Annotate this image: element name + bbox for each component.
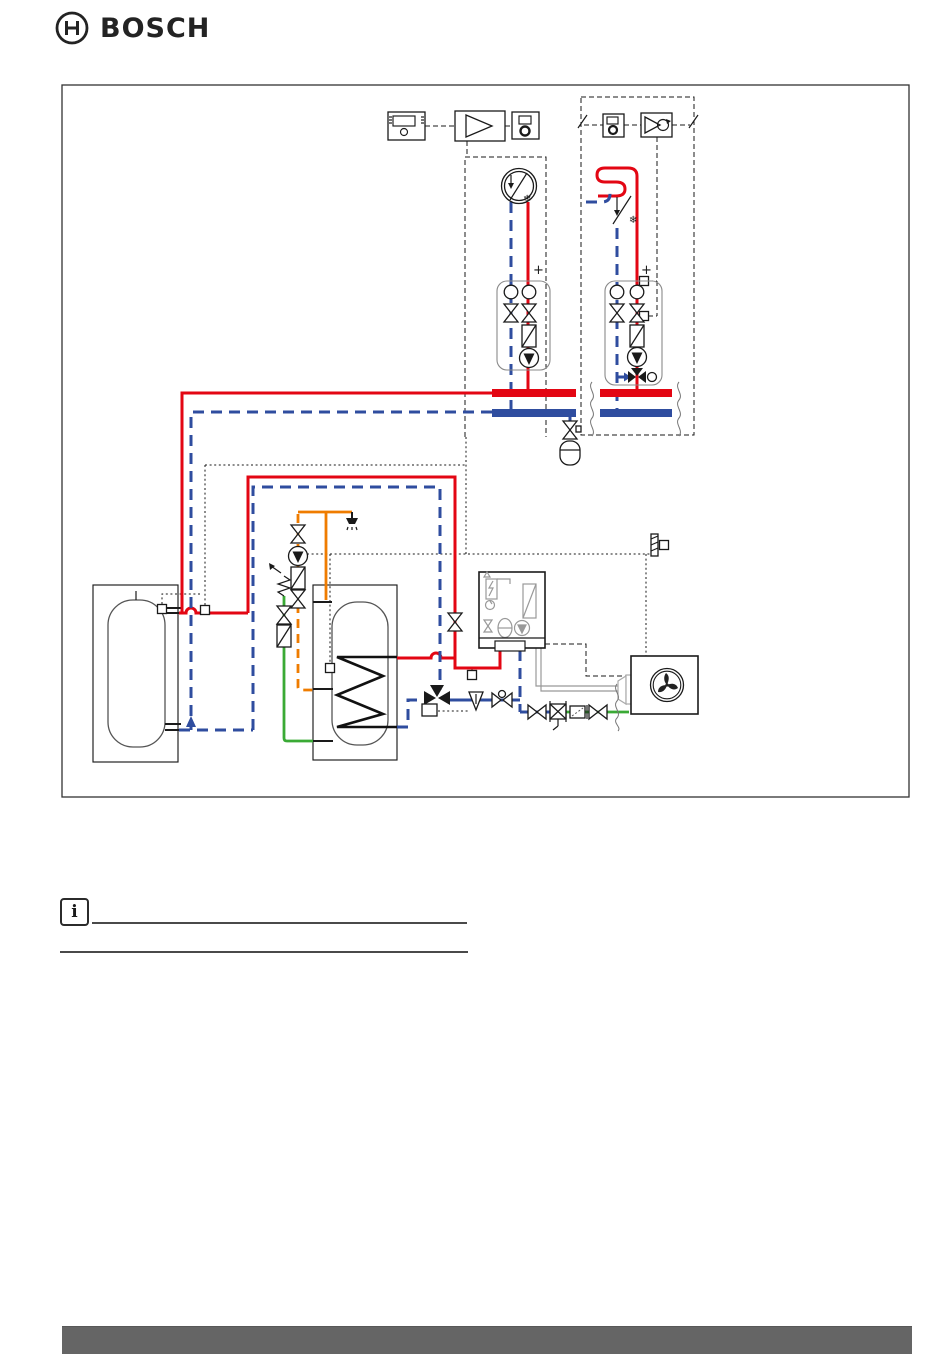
shutoff-valve-icon xyxy=(291,590,305,608)
circuit-pump-icon xyxy=(520,349,539,368)
info-glyph: i xyxy=(71,902,77,922)
check-valve-icon xyxy=(630,325,644,347)
hydraulic-schematic: .sym{fill:#fff;stroke:#1a1a1a;stroke-wid… xyxy=(0,0,950,830)
shutoff-valve-icon xyxy=(277,606,291,624)
indoor-unit-display xyxy=(495,641,525,651)
break-slash xyxy=(578,115,587,128)
circuit-pump-icon xyxy=(628,348,647,367)
supply-pipes xyxy=(179,168,637,668)
heat-pump-indoor-unit xyxy=(479,572,545,651)
info-icon: i xyxy=(60,898,89,926)
system-boundary-boxes xyxy=(465,97,698,437)
buffer-cylinder xyxy=(93,585,181,762)
safety-valve-icon xyxy=(269,563,290,596)
check-valve-icon xyxy=(291,567,305,589)
shower-icon xyxy=(346,512,358,530)
floor-heating-circuit: ❄ + xyxy=(605,196,662,385)
plus-mark: + xyxy=(641,263,652,278)
heat-pump-outdoor-unit xyxy=(631,656,698,714)
mixer-module xyxy=(641,113,672,137)
shutoff-valve-icon xyxy=(610,304,624,322)
line-connector xyxy=(618,676,626,704)
buffer-sensor-top-icon xyxy=(158,605,167,614)
control-module xyxy=(455,111,505,141)
fan-coil-circuit: ❄ + xyxy=(497,169,550,371)
outdoor-temperature-sensor xyxy=(651,534,669,556)
flow-arrow xyxy=(186,716,196,727)
expansion-vessel-icon xyxy=(560,441,580,465)
shutoff-valve-icon xyxy=(528,705,546,719)
floor-module xyxy=(603,114,624,137)
shutoff-valve-icon xyxy=(589,705,607,719)
controller-chain xyxy=(388,111,672,141)
plus-mark: + xyxy=(533,263,544,278)
valve-thermometer-icon xyxy=(630,285,644,299)
flow-meter-icon xyxy=(570,705,587,719)
dhw-circulation-pump-icon xyxy=(289,547,308,566)
room-controller xyxy=(388,112,425,140)
check-valve-icon xyxy=(522,325,536,347)
shutoff-valve-icon xyxy=(291,525,305,543)
shutoff-valve-icon xyxy=(448,613,462,631)
valve-thermometer-icon xyxy=(522,285,536,299)
mixing-valve-icon xyxy=(628,368,657,383)
drain-valve-icon xyxy=(563,421,577,439)
check-valve-icon xyxy=(277,625,291,647)
valve-thermometer-icon xyxy=(504,285,518,299)
supply-pipe-sensor-icon xyxy=(201,606,210,615)
cooling-mode-glyph: ❄ xyxy=(523,194,531,205)
control-wiring xyxy=(162,125,690,711)
shutoff-valve-icon xyxy=(504,304,518,322)
refrigerant-lines xyxy=(536,648,631,704)
three-way-diverter-valve xyxy=(422,685,450,716)
manual-page: { "header": { "logo_text": "BOSCH", "log… xyxy=(0,0,950,1367)
strainer-icon xyxy=(550,701,566,730)
temperature-sensor-icon xyxy=(468,671,477,680)
valve-thermometer-icon xyxy=(610,285,624,299)
cooling-mode-glyph: ❄ xyxy=(629,215,637,226)
note-rule-bottom xyxy=(60,951,468,953)
footer-bar xyxy=(62,1326,912,1354)
note-rule-top xyxy=(92,922,467,924)
diagram-frame xyxy=(62,85,909,797)
manifold-headers xyxy=(492,382,680,465)
dhw-sensor-icon xyxy=(326,664,335,673)
system-module xyxy=(512,112,539,139)
shutoff-valve-icon xyxy=(522,304,536,322)
